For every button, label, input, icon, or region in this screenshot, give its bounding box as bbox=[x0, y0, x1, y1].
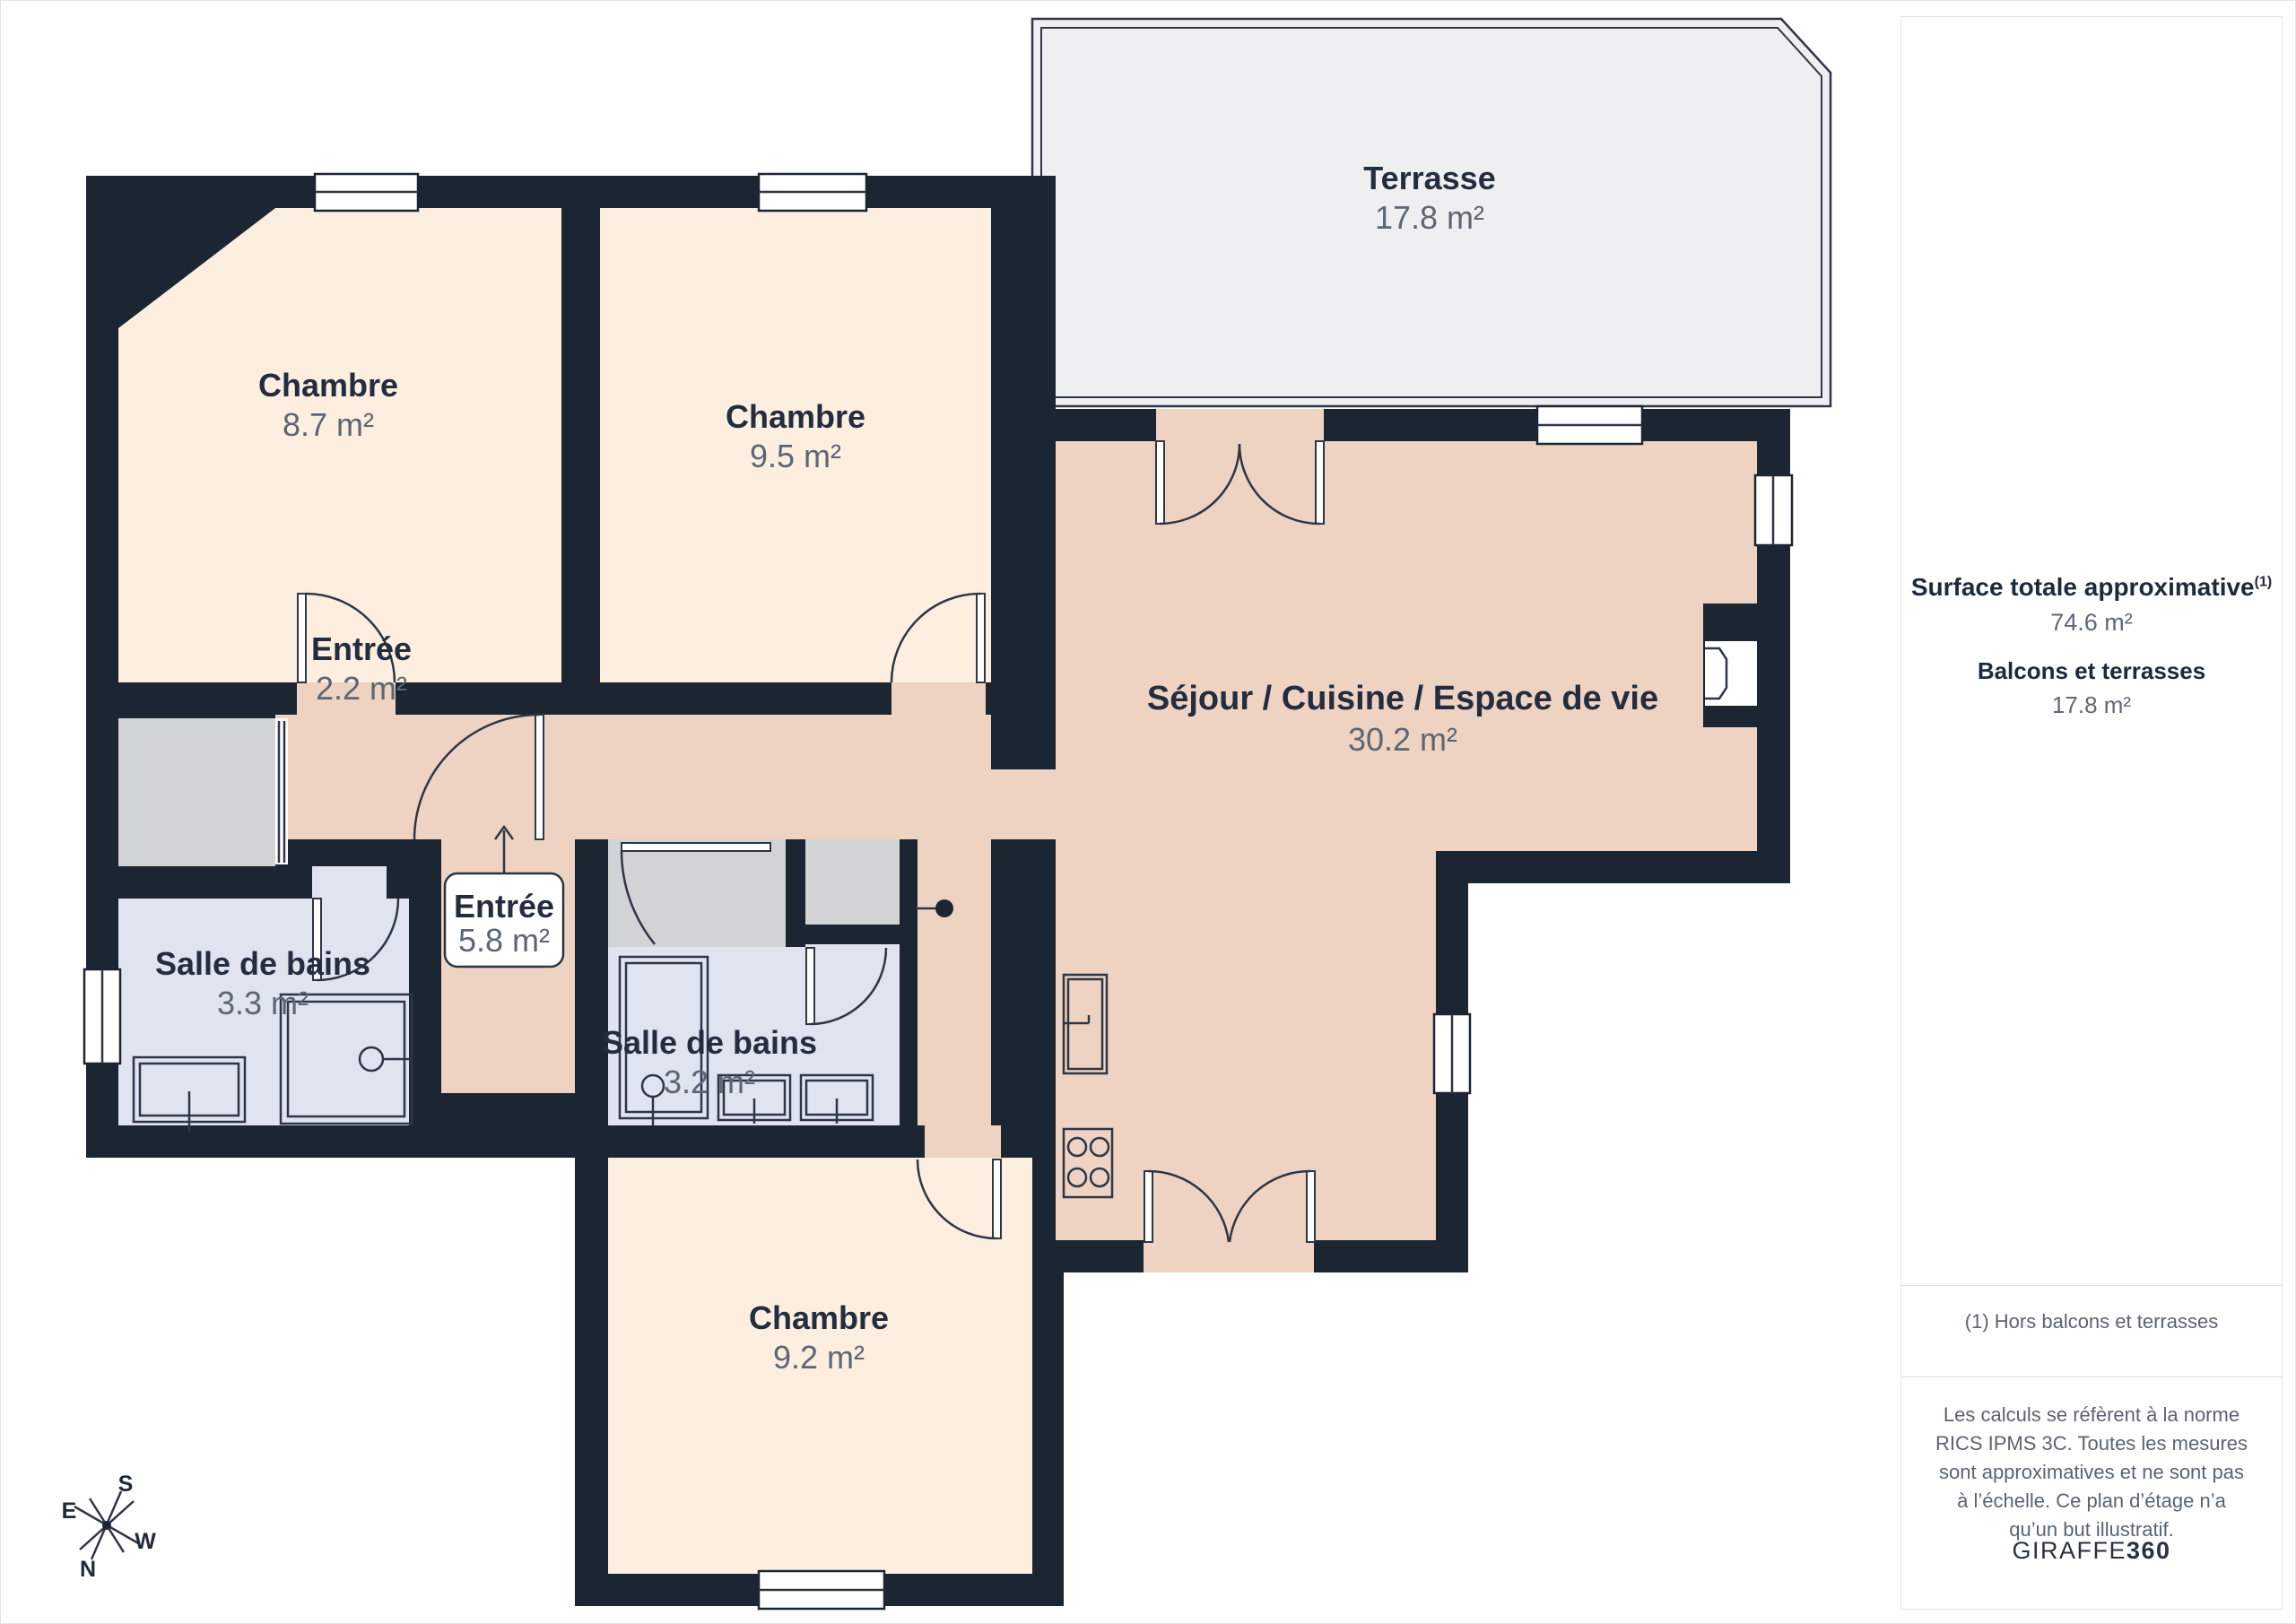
total-area-title-text: Surface totale approximative bbox=[1911, 573, 2255, 601]
terrasse-label: Terrasse bbox=[1363, 160, 1495, 196]
closet-middle bbox=[608, 839, 786, 947]
room-entree-58 bbox=[441, 715, 991, 839]
closet-small bbox=[805, 839, 900, 925]
window-sejour-lower bbox=[1434, 1014, 1470, 1093]
terrasse-area: 17.8 m² bbox=[1375, 199, 1484, 236]
giraffe360-logo: GIRAFFE360 bbox=[1901, 1537, 2282, 1565]
total-area-title: Surface totale approximative(1) bbox=[1901, 573, 2282, 602]
window-sejour-right bbox=[1755, 475, 1792, 545]
sejour-label: Séjour / Cuisine / Espace de vie bbox=[1147, 680, 1658, 717]
chambre-92-label: Chambre bbox=[749, 1299, 889, 1336]
divider bbox=[1901, 1376, 2282, 1377]
entree-22-label: Entrée bbox=[311, 630, 412, 667]
compass-s: S bbox=[118, 1472, 134, 1497]
window-chambre-92 bbox=[759, 1571, 884, 1609]
total-area-title-sup: (1) bbox=[2255, 575, 2273, 590]
total-area-value: 74.6 m² bbox=[1901, 609, 2282, 637]
compass-e: E bbox=[62, 1498, 77, 1524]
chimney-niche bbox=[1705, 641, 1757, 706]
window-chambre-87 bbox=[315, 174, 418, 211]
sdb-32-label: Salle de bains bbox=[602, 1024, 817, 1061]
room-sejour bbox=[1056, 441, 1757, 1240]
entree-58-label: Entrée bbox=[454, 888, 554, 925]
door-closet-sliding bbox=[275, 718, 288, 864]
divider bbox=[1901, 1285, 2282, 1286]
sdb-32-area: 3.2 m² bbox=[664, 1064, 755, 1100]
sejour-area: 30.2 m² bbox=[1348, 721, 1457, 758]
window-sejour-top bbox=[1537, 406, 1642, 444]
entree-58-area: 5.8 m² bbox=[458, 922, 550, 959]
entree-22-area: 2.2 m² bbox=[316, 670, 407, 707]
compass-n: N bbox=[80, 1557, 96, 1582]
sdb-33-label: Salle de bains bbox=[155, 945, 370, 982]
closet-left bbox=[118, 718, 275, 866]
balconies-value: 17.8 m² bbox=[1901, 691, 2282, 719]
chambre-87-label: Chambre bbox=[258, 367, 398, 404]
window-chambre-95 bbox=[759, 174, 866, 211]
footnote: (1) Hors balcons et terrasses bbox=[1901, 1310, 2282, 1333]
compass-rose: S E W N bbox=[62, 1472, 157, 1582]
window-sdb-33 bbox=[84, 969, 120, 1064]
chambre-92-area: 9.2 m² bbox=[773, 1339, 865, 1376]
legal-text: Les calculs se réfèrent à la norme RICS … bbox=[1934, 1401, 2249, 1543]
brand-bold: 360 bbox=[2126, 1537, 2171, 1564]
balconies-label: Balcons et terrasses bbox=[1901, 657, 2282, 685]
room-chambre-87 bbox=[118, 208, 561, 682]
compass-w: W bbox=[135, 1529, 156, 1554]
chambre-95-area: 9.5 m² bbox=[750, 438, 841, 474]
sdb-33-area: 3.3 m² bbox=[217, 985, 309, 1021]
floorplan-page: Entrée 5.8 m² Terrasse 17.8 m² Chambre 8… bbox=[0, 0, 2296, 1624]
chambre-95-label: Chambre bbox=[726, 398, 865, 435]
summary-panel: Surface totale approximative(1) 74.6 m² … bbox=[1900, 16, 2283, 1610]
chambre-87-area: 8.7 m² bbox=[283, 406, 374, 443]
brand-regular: GIRAFFE bbox=[2012, 1537, 2126, 1564]
